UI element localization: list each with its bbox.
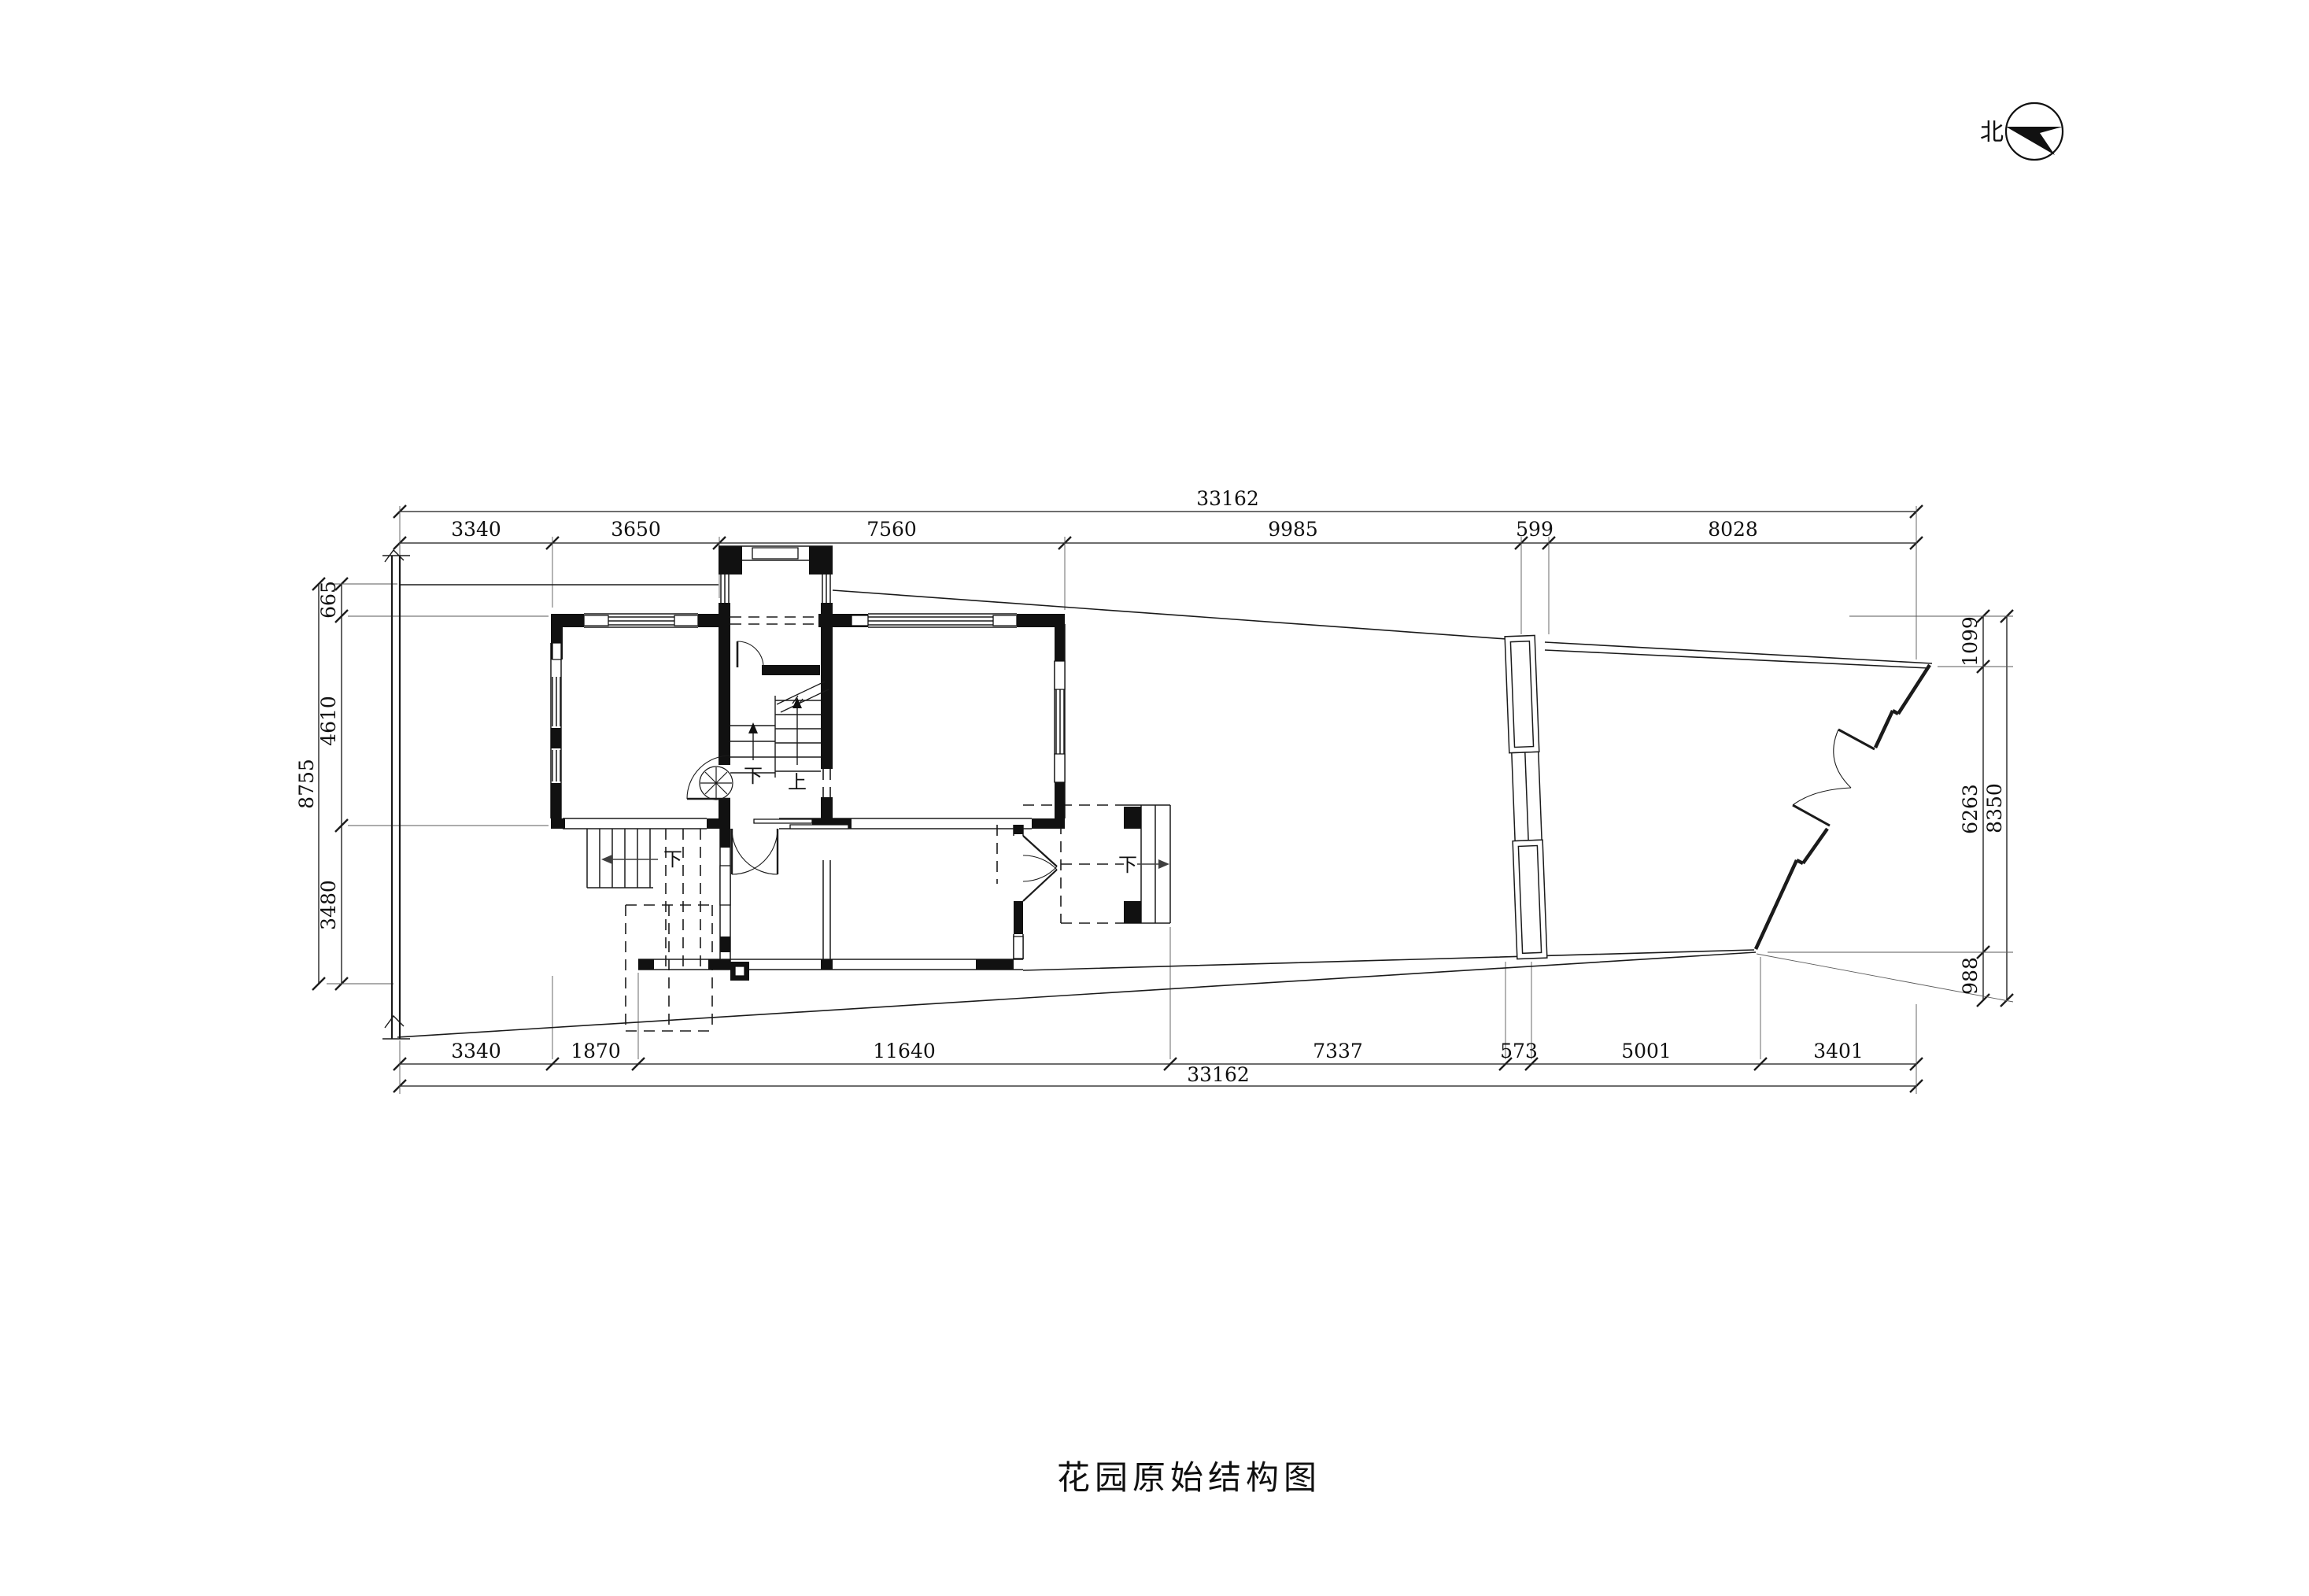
dim-bottom-seg-6: 3401 [1813, 1040, 1864, 1062]
exterior-double-door-leaves [732, 829, 778, 874]
garden-window-wall [1505, 635, 1547, 959]
dim-bottom-total: 33162 [1187, 1063, 1250, 1086]
floor-plan-sheet: 北 33162 3340 3650 7560 9985 599 8028 331… [0, 0, 2309, 1596]
ext-lines [327, 506, 2013, 1094]
boundary-fence-left [392, 556, 400, 1039]
dim-labels-left: 8755 665 4610 3480 [295, 581, 340, 930]
porch-arrowhead-icon [1158, 859, 1169, 869]
dim-left-seg-2: 3480 [317, 880, 340, 930]
tree-branches [700, 767, 732, 799]
stair-down-label: 下 [744, 765, 763, 787]
dim-bottom-seg-1: 1870 [571, 1040, 621, 1062]
wall-lines [551, 546, 1170, 970]
stair-down-arrowhead-icon [748, 722, 758, 733]
porch-door-arcs [1023, 855, 1057, 881]
porch-door-leaves [1023, 836, 1057, 901]
ticks-bottom [393, 1058, 1923, 1092]
dim-top-seg-1: 3650 [611, 518, 661, 541]
floor-plan-drawing: 北 33162 3340 3650 7560 9985 599 8028 331… [0, 0, 2309, 1596]
wall-line-work [551, 546, 1170, 970]
dim-top-seg-3: 9985 [1268, 518, 1318, 541]
gate-door-leaf-upper [1838, 730, 1875, 749]
porch-step-arrow [1137, 859, 1169, 869]
dim-right-seg-1: 6263 [1959, 784, 1982, 834]
garden-wall-right-upper [1875, 665, 1930, 748]
dim-left-seg-0: 665 [317, 581, 340, 619]
dim-top-seg-0: 3340 [451, 518, 501, 541]
hall-door-arc [737, 641, 763, 667]
dim-top-seg-2: 7560 [866, 518, 917, 541]
gate-door-arc-lower [1793, 788, 1851, 805]
dim-labels-right: 8350 1099 6263 988 [1959, 616, 2006, 995]
window-box-shapes [552, 548, 1065, 976]
dim-left-seg-1: 4610 [317, 696, 340, 746]
drawing-title: 花园原始结构图 [1057, 1458, 1321, 1497]
dim-bottom-seg-5: 5001 [1621, 1040, 1672, 1062]
dim-right-seg-0: 1099 [1959, 616, 1982, 667]
dimension-ticks [312, 505, 2013, 1092]
dimension-extension-lines [327, 506, 2013, 1094]
boundary-top [400, 585, 1932, 668]
exterior-double-door-arcs [732, 829, 778, 874]
north-label: 北 [1980, 119, 2004, 146]
boundary-bottom [397, 950, 1756, 1037]
stair-up-label: 上 [788, 771, 807, 793]
garden-wall-right-lower [1756, 829, 1827, 949]
dim-labels-bottom: 33162 3340 1870 11640 7337 573 5001 3401 [451, 1040, 1864, 1086]
site-boundary [382, 550, 1932, 1039]
dim-line-bottom [400, 1064, 1916, 1086]
dim-top-seg-4: 599 [1516, 518, 1553, 541]
dimension-lines [319, 512, 2007, 1086]
exterior-stair-arrow [601, 855, 658, 864]
gate-door-leaf-lower [1793, 805, 1830, 826]
dim-left-total: 8755 [295, 759, 318, 809]
doors [687, 641, 1057, 901]
house: 上 下 下 下 [551, 546, 1170, 1031]
dim-top-total: 33162 [1196, 487, 1259, 510]
porch-down-label: 下 [1118, 854, 1137, 876]
staircase [730, 682, 829, 778]
garden-gate-doors [1793, 730, 1875, 826]
window-boxes [552, 548, 1065, 976]
tree-symbol-icon [700, 767, 733, 800]
dim-right-total: 8350 [1983, 783, 2006, 833]
dim-top-seg-5: 8028 [1708, 518, 1758, 541]
dim-bottom-seg-0: 3340 [451, 1040, 501, 1062]
dim-right-seg-2: 988 [1959, 957, 1982, 995]
ext-stair-arrowhead-icon [601, 855, 612, 864]
window-upper-inner [1510, 641, 1533, 748]
dim-bottom-seg-2: 11640 [873, 1040, 936, 1062]
exterior-stair-down-label: 下 [663, 848, 682, 870]
dim-bottom-seg-3: 7337 [1313, 1040, 1363, 1062]
north-indicator: 北 [1980, 103, 2063, 160]
window-lower-inner [1518, 845, 1541, 953]
gate-door-arc-upper [1834, 730, 1851, 788]
dim-labels-top: 33162 3340 3650 7560 9985 599 8028 [451, 487, 1758, 541]
wall-solid-fills [551, 546, 1141, 981]
dim-bottom-seg-4: 573 [1500, 1040, 1538, 1062]
fence-break-marks [382, 550, 410, 1039]
